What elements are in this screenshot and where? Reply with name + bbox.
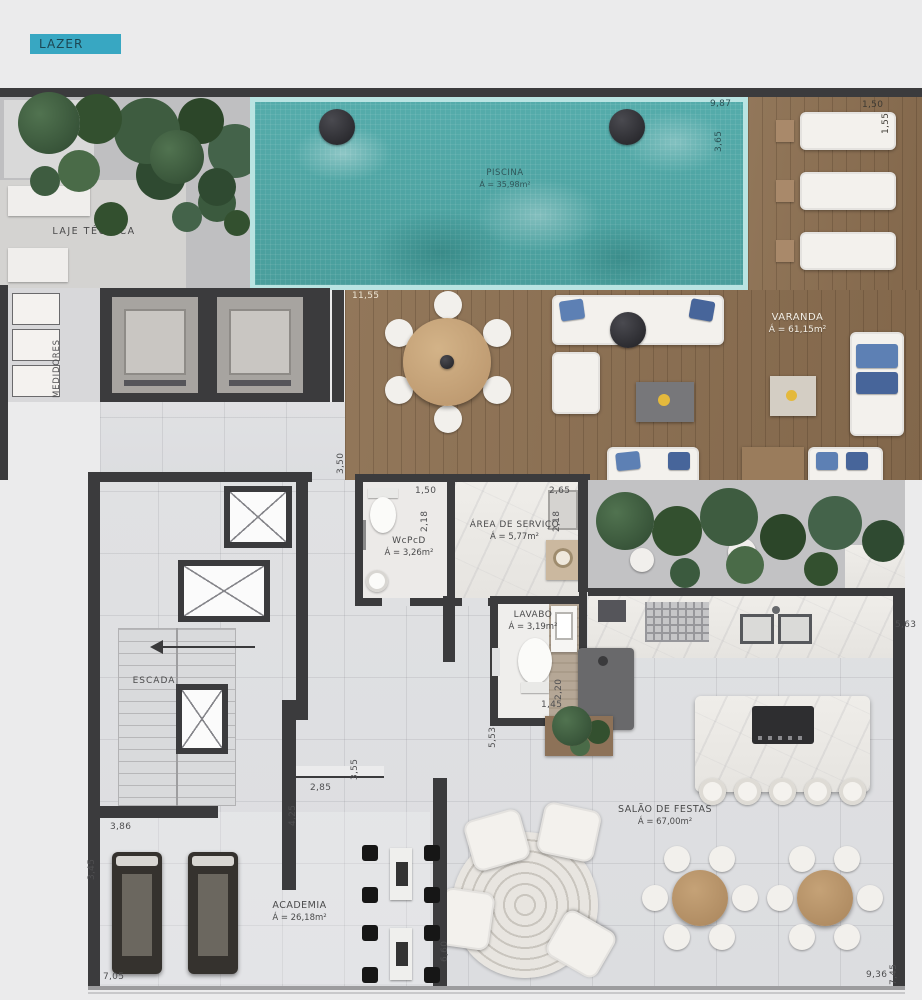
sink-rect: [778, 614, 812, 644]
pillow: [856, 372, 898, 394]
pillow: [856, 344, 898, 368]
party-chair: [767, 885, 793, 911]
sink-rect: [740, 614, 774, 644]
party-chair: [834, 846, 860, 872]
tree-canopy: [18, 92, 80, 154]
salao-name: SALÃO DE FESTAS: [595, 804, 735, 815]
stair-direction-line: [163, 646, 255, 648]
wall-left-upper: [0, 285, 8, 480]
piscina-name: PISCINA: [435, 168, 575, 178]
round-planter: [319, 109, 355, 145]
academia-label: ACADEMIA Á = 26,18m²: [242, 900, 357, 923]
treadmill-console: [116, 856, 158, 866]
wall-staircore-east: [296, 480, 308, 720]
dim-academia-bottom: 7,05: [103, 972, 124, 982]
washer-door: [553, 548, 573, 568]
plant: [552, 706, 592, 746]
bike-wheel: [424, 845, 440, 861]
toilet: [370, 497, 396, 533]
dining-chair: [483, 376, 511, 404]
bar-stool: [839, 778, 866, 805]
laje-tecnica-label: LAJE TÉCNICA: [36, 226, 152, 237]
dim-lavabo-depth: 2,20: [554, 679, 564, 700]
treadmill-belt: [122, 874, 152, 956]
dining-chair: [483, 319, 511, 347]
lavabo-label: LAVABO Á = 3,19m²: [500, 610, 566, 632]
party-chair: [642, 885, 668, 911]
faucet: [598, 656, 608, 666]
dim-hall-depth: 4,25: [288, 805, 298, 826]
bike-seat: [396, 942, 408, 966]
dim-academia-width: 3,86: [110, 822, 131, 832]
round-party-table: [797, 870, 853, 926]
bike-wheel: [362, 967, 378, 983]
stair-arrow-icon: [150, 640, 163, 654]
pillow: [615, 451, 641, 471]
dim-servico-width: 2,65: [549, 486, 570, 496]
bar-stool: [804, 778, 831, 805]
wall-garden-south: [588, 588, 905, 596]
wall-bottom-rail: [88, 992, 905, 994]
wall-left-lower: [88, 472, 100, 988]
wall-corridor-stub: [443, 596, 455, 662]
counter-appliance: [598, 600, 626, 622]
wall-academia-north: [88, 806, 218, 818]
toilet: [518, 638, 552, 684]
bar-stool: [699, 778, 726, 805]
bar-stool: [769, 778, 796, 805]
elevator-door: [124, 380, 186, 386]
treadmill-console: [192, 856, 234, 866]
dim-salao-left: 6,60: [440, 941, 450, 962]
dim-pool-bottom: 11,55: [352, 291, 379, 301]
laje-tecnica-name: LAJE TÉCNICA: [36, 226, 152, 237]
dim-counter-right: 5,63: [895, 620, 916, 630]
plant-pot: [630, 548, 654, 572]
wall-academia-east-jog: [282, 700, 296, 890]
wcpcd-name: WcPcD: [374, 536, 444, 546]
dim-hall-left: 3,50: [336, 453, 346, 474]
dim-salao-bottom: 9,36: [866, 970, 887, 980]
dim-pool-right-a: 9,87: [710, 99, 731, 109]
pillow: [816, 452, 838, 470]
elevator-shaft: [178, 560, 270, 622]
varanda-name: VARANDA: [740, 312, 855, 323]
dim-hall-width: 2,85: [310, 783, 331, 793]
decor-bowl: [786, 390, 797, 401]
armchair: [552, 352, 600, 414]
academia-area: Á = 26,18m²: [242, 913, 357, 923]
toilet-tank: [521, 682, 549, 693]
elevator-cab: [229, 309, 291, 375]
dim-hall-step: 3,55: [350, 759, 360, 780]
faucet: [772, 606, 780, 614]
party-chair: [732, 885, 758, 911]
wall-lobby-south: [88, 472, 312, 482]
party-chair: [664, 924, 690, 950]
lobby-floor: [100, 402, 345, 480]
drain-grid: [645, 602, 709, 642]
door-opening: [382, 598, 410, 606]
party-chair: [709, 846, 735, 872]
dim-salao-right: 7,45: [889, 964, 899, 985]
dim-wcpcd-width: 1,50: [415, 486, 436, 496]
side-table: [776, 240, 794, 262]
table-centerpiece: [440, 355, 454, 369]
party-chair: [789, 924, 815, 950]
salao-label: SALÃO DE FESTAS Á = 67,00m²: [595, 804, 735, 827]
bike-wheel: [362, 845, 378, 861]
sink-round: [366, 570, 388, 592]
palm-canopy: [596, 492, 654, 550]
bike-seat: [396, 862, 408, 886]
floor-plan: LAZER LAJE TÉCNICA PISCINA Á = 35,98m² V…: [0, 0, 922, 1000]
bike-wheel: [424, 887, 440, 903]
round-party-table: [672, 870, 728, 926]
elevator-door: [229, 380, 291, 386]
wall-top: [0, 88, 922, 97]
pillow: [559, 298, 586, 321]
dining-chair: [434, 405, 462, 433]
bike-wheel: [424, 925, 440, 941]
party-chair: [664, 846, 690, 872]
varanda-area: Á = 61,15m²: [740, 325, 855, 335]
bench: [8, 186, 90, 216]
varanda-label: VARANDA Á = 61,15m²: [740, 312, 855, 335]
treadmill-belt: [198, 874, 228, 956]
party-chair: [709, 924, 735, 950]
lavabo-name: LAVABO: [500, 610, 566, 620]
elevator-cab: [124, 309, 186, 375]
sun-lounger: [800, 232, 896, 270]
wall-right: [893, 592, 905, 986]
escada-label: ESCADA: [122, 676, 186, 686]
dim-lavabo-width: 1,45: [541, 700, 562, 710]
round-planter: [609, 109, 645, 145]
dim-wcpcd-depth: 2,18: [420, 511, 430, 532]
pillow: [846, 452, 868, 470]
academia-name: ACADEMIA: [242, 900, 357, 911]
page-margin: [905, 480, 922, 1000]
counter-corner: [845, 545, 905, 590]
party-chair: [857, 885, 883, 911]
side-table: [776, 180, 794, 202]
piscina-area: Á = 35,98m²: [435, 180, 575, 189]
grab-bar: [363, 520, 366, 550]
lavabo-area: Á = 3,19m²: [500, 622, 566, 632]
elevator-shaft: [224, 486, 292, 548]
wall-bottom: [88, 986, 905, 990]
party-chair: [834, 924, 860, 950]
wcpcd-label: WcPcD Á = 3,26m²: [374, 536, 444, 558]
dim-academia-left: 3,45: [87, 859, 97, 880]
bike-wheel: [424, 967, 440, 983]
sun-lounger: [800, 172, 896, 210]
party-chair: [789, 846, 815, 872]
pillow: [688, 298, 715, 322]
piscina-label: PISCINA Á = 35,98m²: [435, 168, 575, 189]
lazer-badge: LAZER: [30, 34, 121, 54]
round-planter: [610, 312, 646, 348]
bike-wheel: [362, 925, 378, 941]
side-table: [776, 120, 794, 142]
dim-lavabo-hall: 5,53: [488, 727, 498, 748]
door-opening: [492, 648, 500, 676]
bike-wheel: [362, 887, 378, 903]
dim-pool-right-b: 3,65: [714, 131, 724, 152]
bar-stool: [734, 778, 761, 805]
salao-area: Á = 67,00m²: [595, 817, 735, 827]
dim-deck-top: 1,50: [862, 100, 883, 110]
tree-canopy: [150, 130, 204, 184]
wcpcd-area: Á = 3,26m²: [374, 548, 444, 558]
meter-cabinet: [12, 293, 60, 325]
escada-name: ESCADA: [122, 676, 186, 686]
pillow: [668, 452, 690, 470]
area-servico-area: Á = 5,77m²: [452, 532, 577, 542]
dim-deck-right: 1,55: [881, 113, 891, 134]
dining-chair: [434, 291, 462, 319]
medidores-label: MEDIDORES: [52, 339, 62, 398]
cooktop-knobs: [758, 736, 808, 740]
plant-pot: [728, 538, 756, 566]
counter-step: [296, 766, 384, 778]
decor-bowl: [658, 394, 670, 406]
shaft-duct: [176, 684, 228, 754]
bench: [8, 248, 68, 282]
dim-servico-depth: 2,18: [552, 511, 562, 532]
door-opening: [462, 598, 488, 606]
